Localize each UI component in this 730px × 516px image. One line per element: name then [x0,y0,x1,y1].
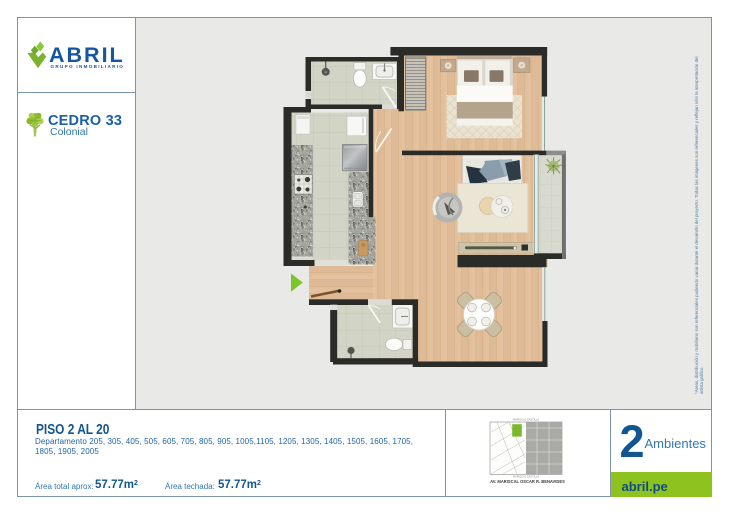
svg-text:MARISCAL CASTILLA: MARISCAL CASTILLA [513,418,539,422]
svg-text:MARISCAL CASTILLA: MARISCAL CASTILLA [513,474,539,478]
